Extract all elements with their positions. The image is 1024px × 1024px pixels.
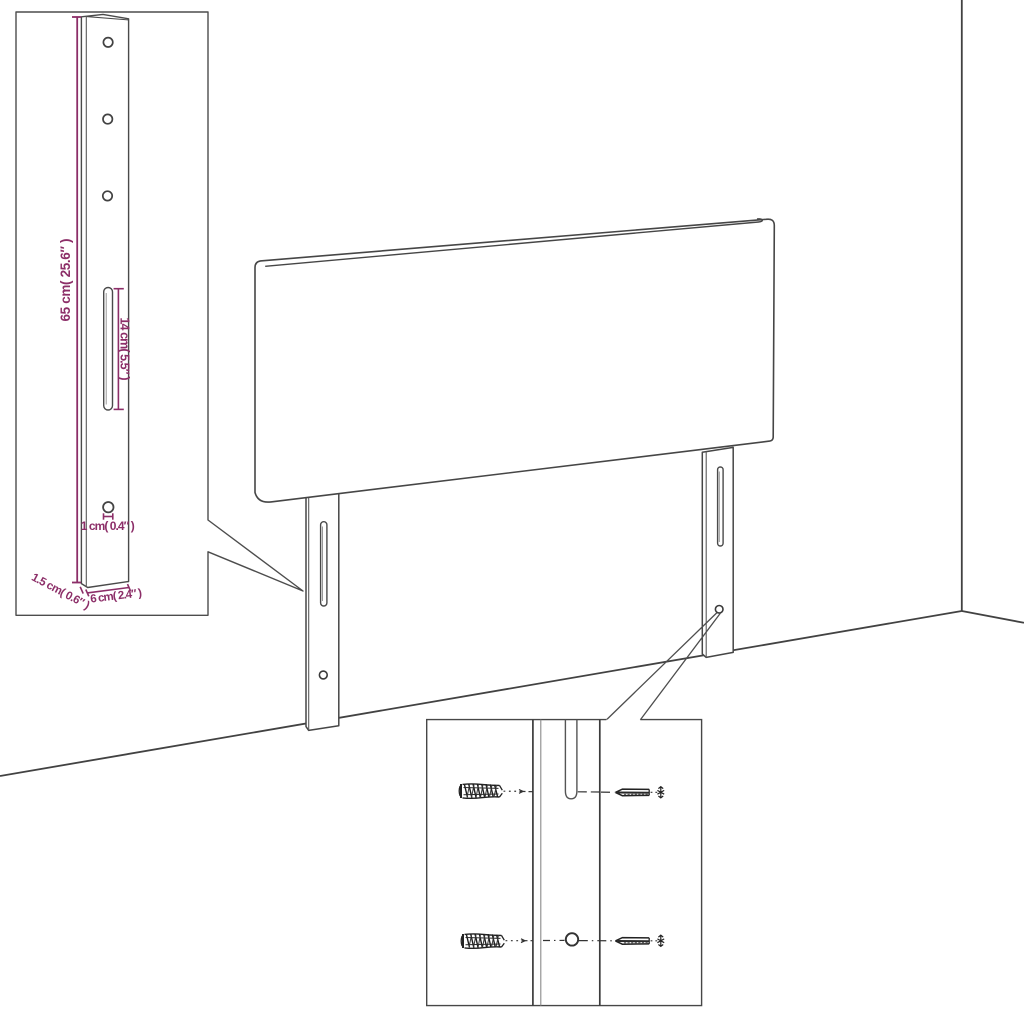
svg-text:65 cm( 25.6″ ): 65 cm( 25.6″ ) [58, 239, 73, 322]
svg-text:1 cm( 0.4″ ): 1 cm( 0.4″ ) [81, 519, 135, 533]
svg-text:14 cm( 5.5″ ): 14 cm( 5.5″ ) [117, 318, 131, 381]
